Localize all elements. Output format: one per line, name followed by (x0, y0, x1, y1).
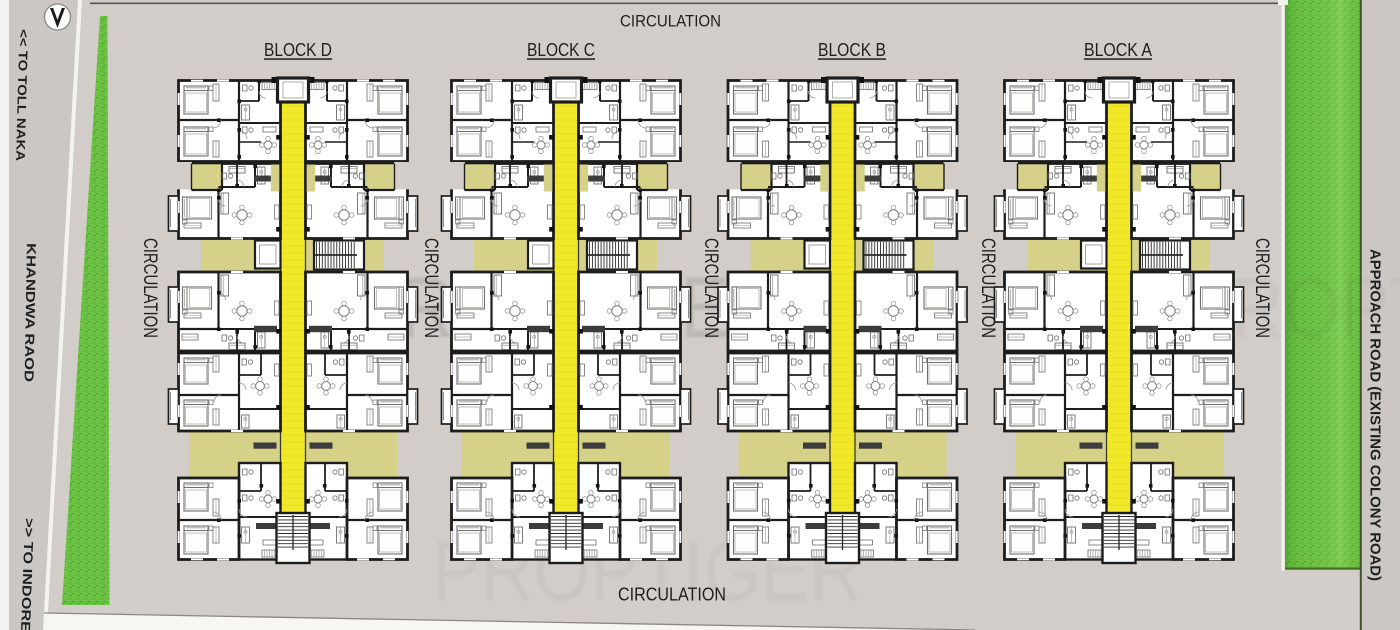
svg-text:CIRCULATION: CIRCULATION (620, 13, 721, 31)
svg-text:BLOCK A: BLOCK A (1084, 40, 1152, 60)
svg-text:BLOCK D: BLOCK D (264, 40, 332, 60)
svg-text:BLOCK B: BLOCK B (818, 40, 886, 60)
svg-text:CIRCULATION: CIRCULATION (139, 238, 160, 338)
svg-text:CIRCULATION: CIRCULATION (1251, 238, 1272, 338)
svg-text:KHANDWA RAOD: KHANDWA RAOD (22, 243, 39, 382)
svg-text:BLOCK C: BLOCK C (527, 40, 595, 60)
svg-text:CIRCULATION: CIRCULATION (700, 238, 721, 338)
svg-text:CIRCULATION: CIRCULATION (977, 238, 998, 338)
svg-text:CIRCULATION: CIRCULATION (618, 585, 726, 605)
svg-text:APPROACH ROAD (EXISTING COLONY: APPROACH ROAD (EXISTING COLONY ROAD) (1367, 249, 1384, 581)
svg-text:CIRCULATION: CIRCULATION (420, 238, 441, 338)
